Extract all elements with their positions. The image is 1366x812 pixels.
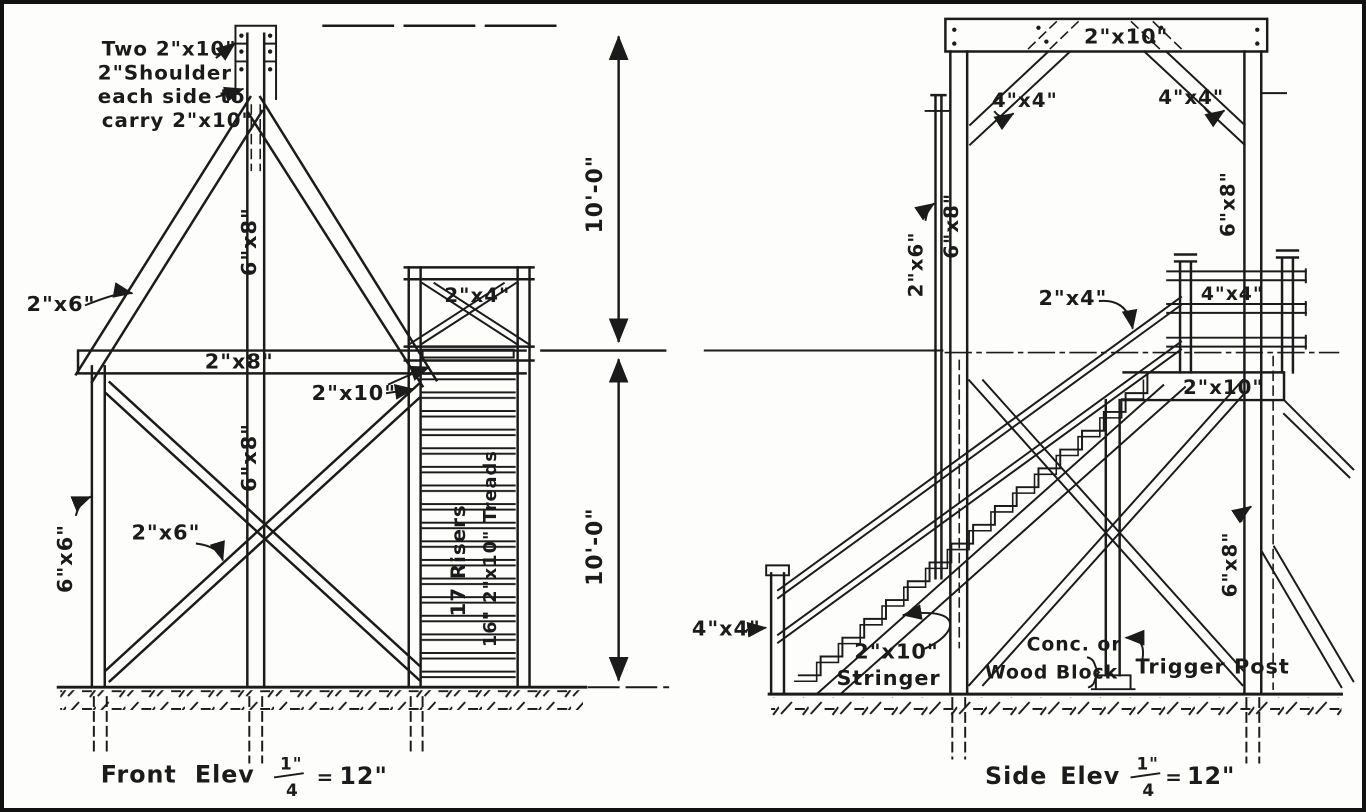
dimension-upper: 10'-0" [583,155,608,233]
label-platform-beam: 2"x10" [1183,376,1264,399]
note-line-3: each side to [98,85,246,108]
side-caption: Side Elev 1" 4 = 12" [985,753,1235,800]
label-stringer-name: Stringer [836,666,940,690]
scale-equals: = [317,766,335,789]
label-stair-rail: 2"x4" [1038,286,1107,310]
label-cross-beam: 2"x8" [205,349,274,373]
label-x-brace: 2"x6" [131,521,200,545]
label-outer-post: 2"x6" [905,231,928,297]
label-knee-brace-right: 4"x4" [1158,86,1224,109]
label-footing-line1: Conc. or [1027,635,1122,656]
front-note: Two 2"x10" 2"Shoulder each side to carry… [98,37,253,131]
scale-numerator: 1" [280,753,302,773]
front-caption-word2: Elev [195,760,255,788]
outrigger-braces [1261,400,1353,687]
side-caption-word1: Side [985,762,1047,790]
label-knee-brace-left: 4"x4" [992,89,1058,112]
scale-numerator-side: 1" [1136,753,1158,773]
label-platform-rail-post: 4"x4" [1201,284,1264,305]
front-caption-word1: Front [101,760,177,788]
label-aframe-brace: 2"x6" [27,292,96,316]
label-left-post-side: 6"x8" [940,193,963,259]
front-elevation: Two 2"x10" 2"Shoulder each side to carry… [27,26,586,800]
elevation-drawing: Two 2"x10" 2"Shoulder each side to carry… [4,4,1362,808]
scale-denominator: 4 [286,780,299,800]
ground-line-front [58,687,586,762]
label-treads: 16" 2"x10" Treads [480,450,501,647]
side-caption-word2: Elev [1060,762,1120,790]
scale-equals-side: = [1165,766,1183,789]
dimension-lower: 10'-0" [583,507,608,585]
label-stair-carriage: 2"x10" [312,381,396,405]
label-top-beam: 2"x10" [1084,25,1168,49]
note-line-4: carry 2"x10" [102,109,253,132]
label-guard-rail: 2"x4" [444,284,510,307]
ground-line-side [769,694,1341,762]
label-pole-upper: 6"x8" [237,207,261,276]
label-stringer-size: 2"x10" [854,639,938,663]
dimension-lines: 10'-0" 10'-0" [324,26,943,687]
label-left-post: 6"x6" [53,524,77,593]
scale-value: 12" [339,762,387,790]
label-risers: 17 Risers [447,504,470,616]
label-pole-lower: 6"x8" [237,423,261,492]
side-elevation: 2"x10" 4"x4" 4"x4" 2"x6" 6"x8" 6"x8" [692,19,1353,800]
scale-denominator-side: 4 [1142,780,1155,800]
note-line-2: 2"Shoulder [98,61,232,84]
stair-column-front [405,267,534,687]
label-trigger-post: Trigger Post [1135,654,1289,678]
scale-value-side: 12" [1187,762,1235,790]
left-post-front [92,366,105,687]
drawing-sheet: Two 2"x10" 2"Shoulder each side to carry… [0,0,1366,812]
platform-railing [1167,251,1306,373]
label-right-post-lower: 6"x8" [1218,531,1241,597]
label-right-post-upper: 6"x8" [1217,171,1240,237]
front-caption: Front Elev 1" 4 = 12" [101,753,388,800]
